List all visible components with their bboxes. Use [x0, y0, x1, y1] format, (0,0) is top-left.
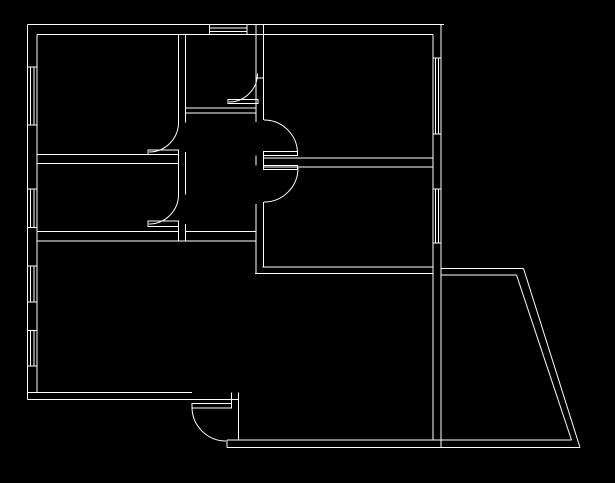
- right-wall-window-2: [433, 189, 441, 243]
- left-wall-window-3: [28, 266, 38, 302]
- cad-drawing-viewport: [0, 0, 615, 483]
- door-swing-arc: [149, 195, 179, 225]
- left-wall-window-4: [28, 331, 38, 367]
- left-wall-window-2: [28, 189, 38, 228]
- bottom-right-room-door: [264, 166, 299, 203]
- left-middle-room-door: [148, 195, 179, 227]
- top-middle-room-door: [228, 74, 258, 104]
- door-swing-arc: [264, 120, 298, 154]
- door-leaf: [192, 404, 232, 409]
- windows-group: [28, 25, 442, 367]
- walls-group: [28, 25, 581, 448]
- top-right-room-door: [264, 120, 298, 156]
- doors-group: [148, 74, 298, 442]
- door-leaf: [264, 152, 298, 156]
- top-wall-window: [210, 25, 248, 35]
- door-swing-arc: [149, 123, 179, 153]
- top-left-room-door: [148, 123, 179, 155]
- door-swing-arc: [192, 407, 226, 441]
- balcony-slant-wall: [524, 269, 581, 448]
- left-wall-window-1: [28, 67, 38, 125]
- entrance-door: [192, 404, 232, 442]
- right-wall-window-1: [433, 58, 441, 134]
- door-swing-arc: [264, 168, 298, 202]
- balcony-slant-wall: [517, 275, 572, 440]
- door-swing-arc: [229, 74, 258, 103]
- floor-plan-canvas[interactable]: [0, 0, 615, 483]
